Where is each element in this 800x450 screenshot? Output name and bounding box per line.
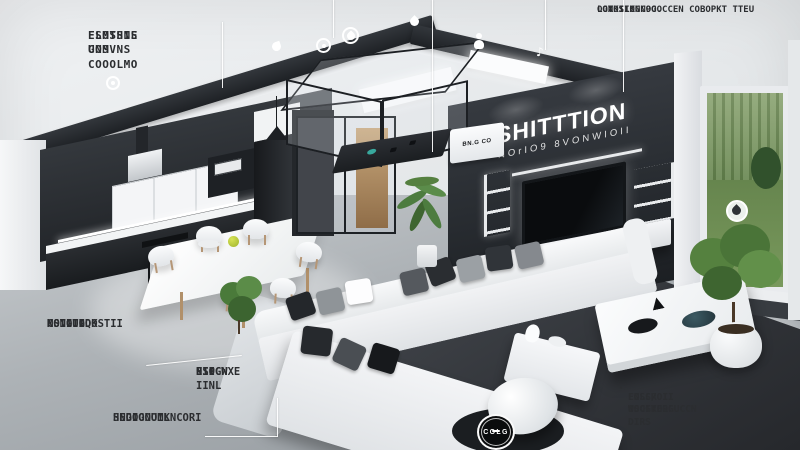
window-leaf-glyph <box>730 204 743 217</box>
leader-line <box>545 0 546 50</box>
label-line: OOTOIIK <box>597 5 635 17</box>
potted-tree <box>680 210 790 390</box>
coffee-table-bowl <box>627 316 659 336</box>
wall-shelf-right <box>634 162 674 226</box>
hub-device <box>390 147 397 152</box>
tree-foliage <box>738 250 782 288</box>
badge-label: COLG <box>483 429 508 436</box>
swirl-icon-dot <box>322 44 326 48</box>
garden-bush <box>751 147 781 189</box>
hub-device <box>366 148 377 155</box>
sofa-pillow <box>344 278 373 306</box>
label-line: FSOSHIE UNS COOOLMO <box>88 29 138 72</box>
swirl-icon <box>316 38 331 53</box>
palm-plant <box>395 175 455 270</box>
isometric-interior-render: SHITTTION NOrIO9 8VONWIOII <box>0 0 800 450</box>
label-line: NOTOUD <box>47 318 85 332</box>
dining-chair <box>243 219 269 239</box>
dial-icon <box>106 76 120 90</box>
label-bottom-right-tick: ' <box>620 385 622 395</box>
device-label: BN.G CO <box>462 138 491 148</box>
leaf-icon-glyph <box>345 30 356 41</box>
bush-plant <box>216 276 264 334</box>
sofa-pillow <box>485 244 514 271</box>
leader-line <box>432 0 433 152</box>
table-bowl <box>198 240 220 248</box>
person-icon-head <box>476 33 482 39</box>
leader-line <box>277 398 278 437</box>
table-leg <box>180 292 183 320</box>
bush-foliage <box>228 296 256 322</box>
label-line: FNLSR OOOGROOL DIRS <box>628 392 674 429</box>
label-line: NIP <box>196 366 215 380</box>
wall-shelf-left <box>484 170 510 237</box>
cold-badge: COLG <box>477 414 515 450</box>
leader-line <box>222 22 223 88</box>
glass-cube <box>284 50 474 168</box>
bush-stem <box>238 320 240 334</box>
tree-soil <box>718 324 754 334</box>
pendant-lamp-cord <box>276 96 277 128</box>
hub-device <box>409 140 416 145</box>
dial-icon-dot <box>111 81 115 85</box>
sofa-pillow <box>300 325 333 356</box>
apple-decor <box>228 236 239 247</box>
person-icon-body <box>474 40 484 49</box>
leader-line <box>205 436 278 437</box>
decor-cone <box>650 296 664 310</box>
label-line: SNGOONUMLNCORI <box>113 412 202 426</box>
person-icon <box>474 33 484 50</box>
music-note-icon: ♪ <box>536 45 544 59</box>
leader-line <box>333 0 334 38</box>
window-leaf-icon <box>726 200 748 222</box>
plant-pot <box>417 245 437 267</box>
cursor-icon <box>271 41 283 53</box>
tree-foliage <box>702 266 742 300</box>
leaf-icon <box>342 27 359 44</box>
